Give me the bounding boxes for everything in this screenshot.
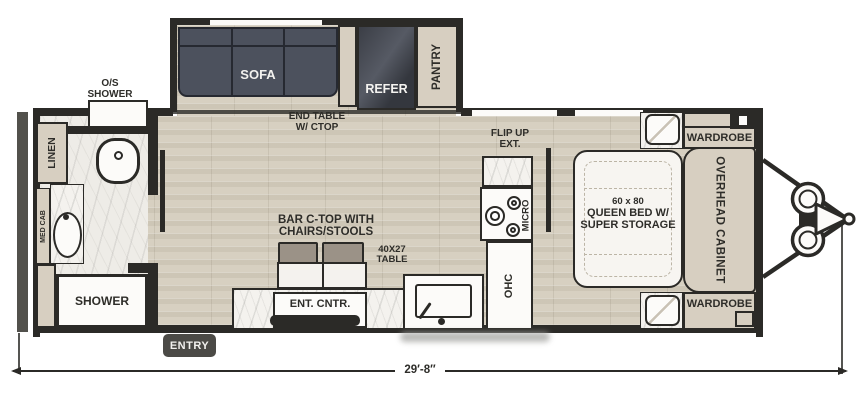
shower-label: SHOWER <box>75 295 129 308</box>
ohc-label: OHC <box>503 273 515 297</box>
dim-arrow-right-icon <box>838 367 848 375</box>
bed-dash-line <box>584 254 672 255</box>
bath-wall-lower <box>148 263 158 333</box>
overhead-cabinet-label: OVERHEAD CABINET <box>714 156 726 283</box>
micro-label-box: MICRO <box>518 191 533 239</box>
bar-table <box>277 262 367 289</box>
wardrobe-bottom-label: WARDROBE <box>685 298 754 310</box>
rear-bumper <box>17 112 28 332</box>
med-cab-label: MED CAB <box>40 210 47 243</box>
range-counter: MICRO <box>480 187 533 241</box>
wardrobe-top: WARDROBE <box>683 126 756 149</box>
os-shower-label: O/S SHOWER <box>78 79 142 100</box>
slideout-window <box>210 20 322 25</box>
bed-size-label: 60 x 80 <box>573 196 683 207</box>
kitchen-faucet-knob-icon <box>438 318 445 325</box>
bath-sliding-door <box>160 150 165 232</box>
dim-line-right <box>445 370 846 372</box>
ent-cntr-label: ENT. CNTR. <box>275 298 365 310</box>
entry-label: ENTRY <box>170 340 209 352</box>
slideout-left-wall <box>170 18 177 112</box>
dim-line-left <box>13 370 395 372</box>
coupler-icon <box>844 214 854 224</box>
bed-label: 60 x 80 QUEEN BED W/ SUPER STORAGE <box>573 196 683 231</box>
hitch-assembly <box>756 145 868 280</box>
bed-main-label: QUEEN BED W/ SUPER STORAGE <box>573 207 683 231</box>
overhead-cabinet: OVERHEAD CABINET <box>683 147 756 293</box>
end-table-label: END TABLE W/ CTOP <box>277 112 357 133</box>
linen-label: LINEN <box>46 137 58 169</box>
ohc-cabinet: OHC <box>486 241 533 330</box>
wardrobe-top-label: WARDROBE <box>687 132 752 144</box>
dim-text: 29′-8″ <box>385 364 455 376</box>
pillow <box>645 295 680 326</box>
outside-shower-port <box>88 100 148 128</box>
end-table <box>338 25 357 107</box>
bath-wall-upper <box>148 112 158 195</box>
table-label: 40X27 TABLE <box>362 245 422 265</box>
pillow <box>645 114 680 145</box>
micro-label: MICRO <box>520 199 531 231</box>
shower-stall: SHOWER <box>56 274 148 328</box>
med-cab: MED CAB <box>36 188 50 264</box>
sink-counter <box>403 274 484 330</box>
tv-icon <box>270 315 360 326</box>
flip-up-ext-label: FLIP UP EXT. <box>480 129 540 150</box>
entry-step-shadow <box>400 332 550 342</box>
bed-dash-line <box>584 188 672 189</box>
bar-stool <box>322 242 364 264</box>
bar-stool <box>278 242 318 264</box>
refer-label: REFER <box>359 82 414 96</box>
linen-cabinet: LINEN <box>36 122 68 184</box>
bar-ctop-label: BAR C-TOP WITH CHAIRS/STOOLS <box>266 214 386 238</box>
sofa-divider <box>283 29 285 95</box>
travel-trailer-floorplan: O/S SHOWER LINEN MED CAB SHOWER SOFA REF… <box>0 0 868 413</box>
pantry-label: PANTRY <box>431 44 443 90</box>
shower-wall-stub <box>128 263 158 273</box>
wardrobe-drawer <box>735 311 754 327</box>
sofa-back-line <box>180 45 336 47</box>
flip-up-extension <box>482 156 533 187</box>
sofa-label: SOFA <box>180 67 336 82</box>
dim-arrow-left-icon <box>11 367 21 375</box>
sofa-divider <box>231 29 233 95</box>
table-divider <box>322 264 324 287</box>
pantry: PANTRY <box>416 25 458 108</box>
bath-faucet-icon <box>63 214 69 220</box>
toilet <box>96 138 140 184</box>
bedroom-window <box>575 110 643 116</box>
kitchen-window <box>472 110 557 116</box>
wardrobe-bottom: WARDROBE <box>683 292 756 330</box>
entry-badge: ENTRY <box>163 334 216 357</box>
burner-icon <box>485 206 505 226</box>
refrigerator: REFER <box>357 25 416 110</box>
sofa: SOFA <box>178 27 338 97</box>
kitchen-bed-wall-stub <box>546 148 551 232</box>
toilet-flush-icon <box>114 151 123 160</box>
dim-ext-right <box>841 222 843 374</box>
bath-cabinet-strip <box>36 264 56 328</box>
corner-vent <box>737 114 749 127</box>
